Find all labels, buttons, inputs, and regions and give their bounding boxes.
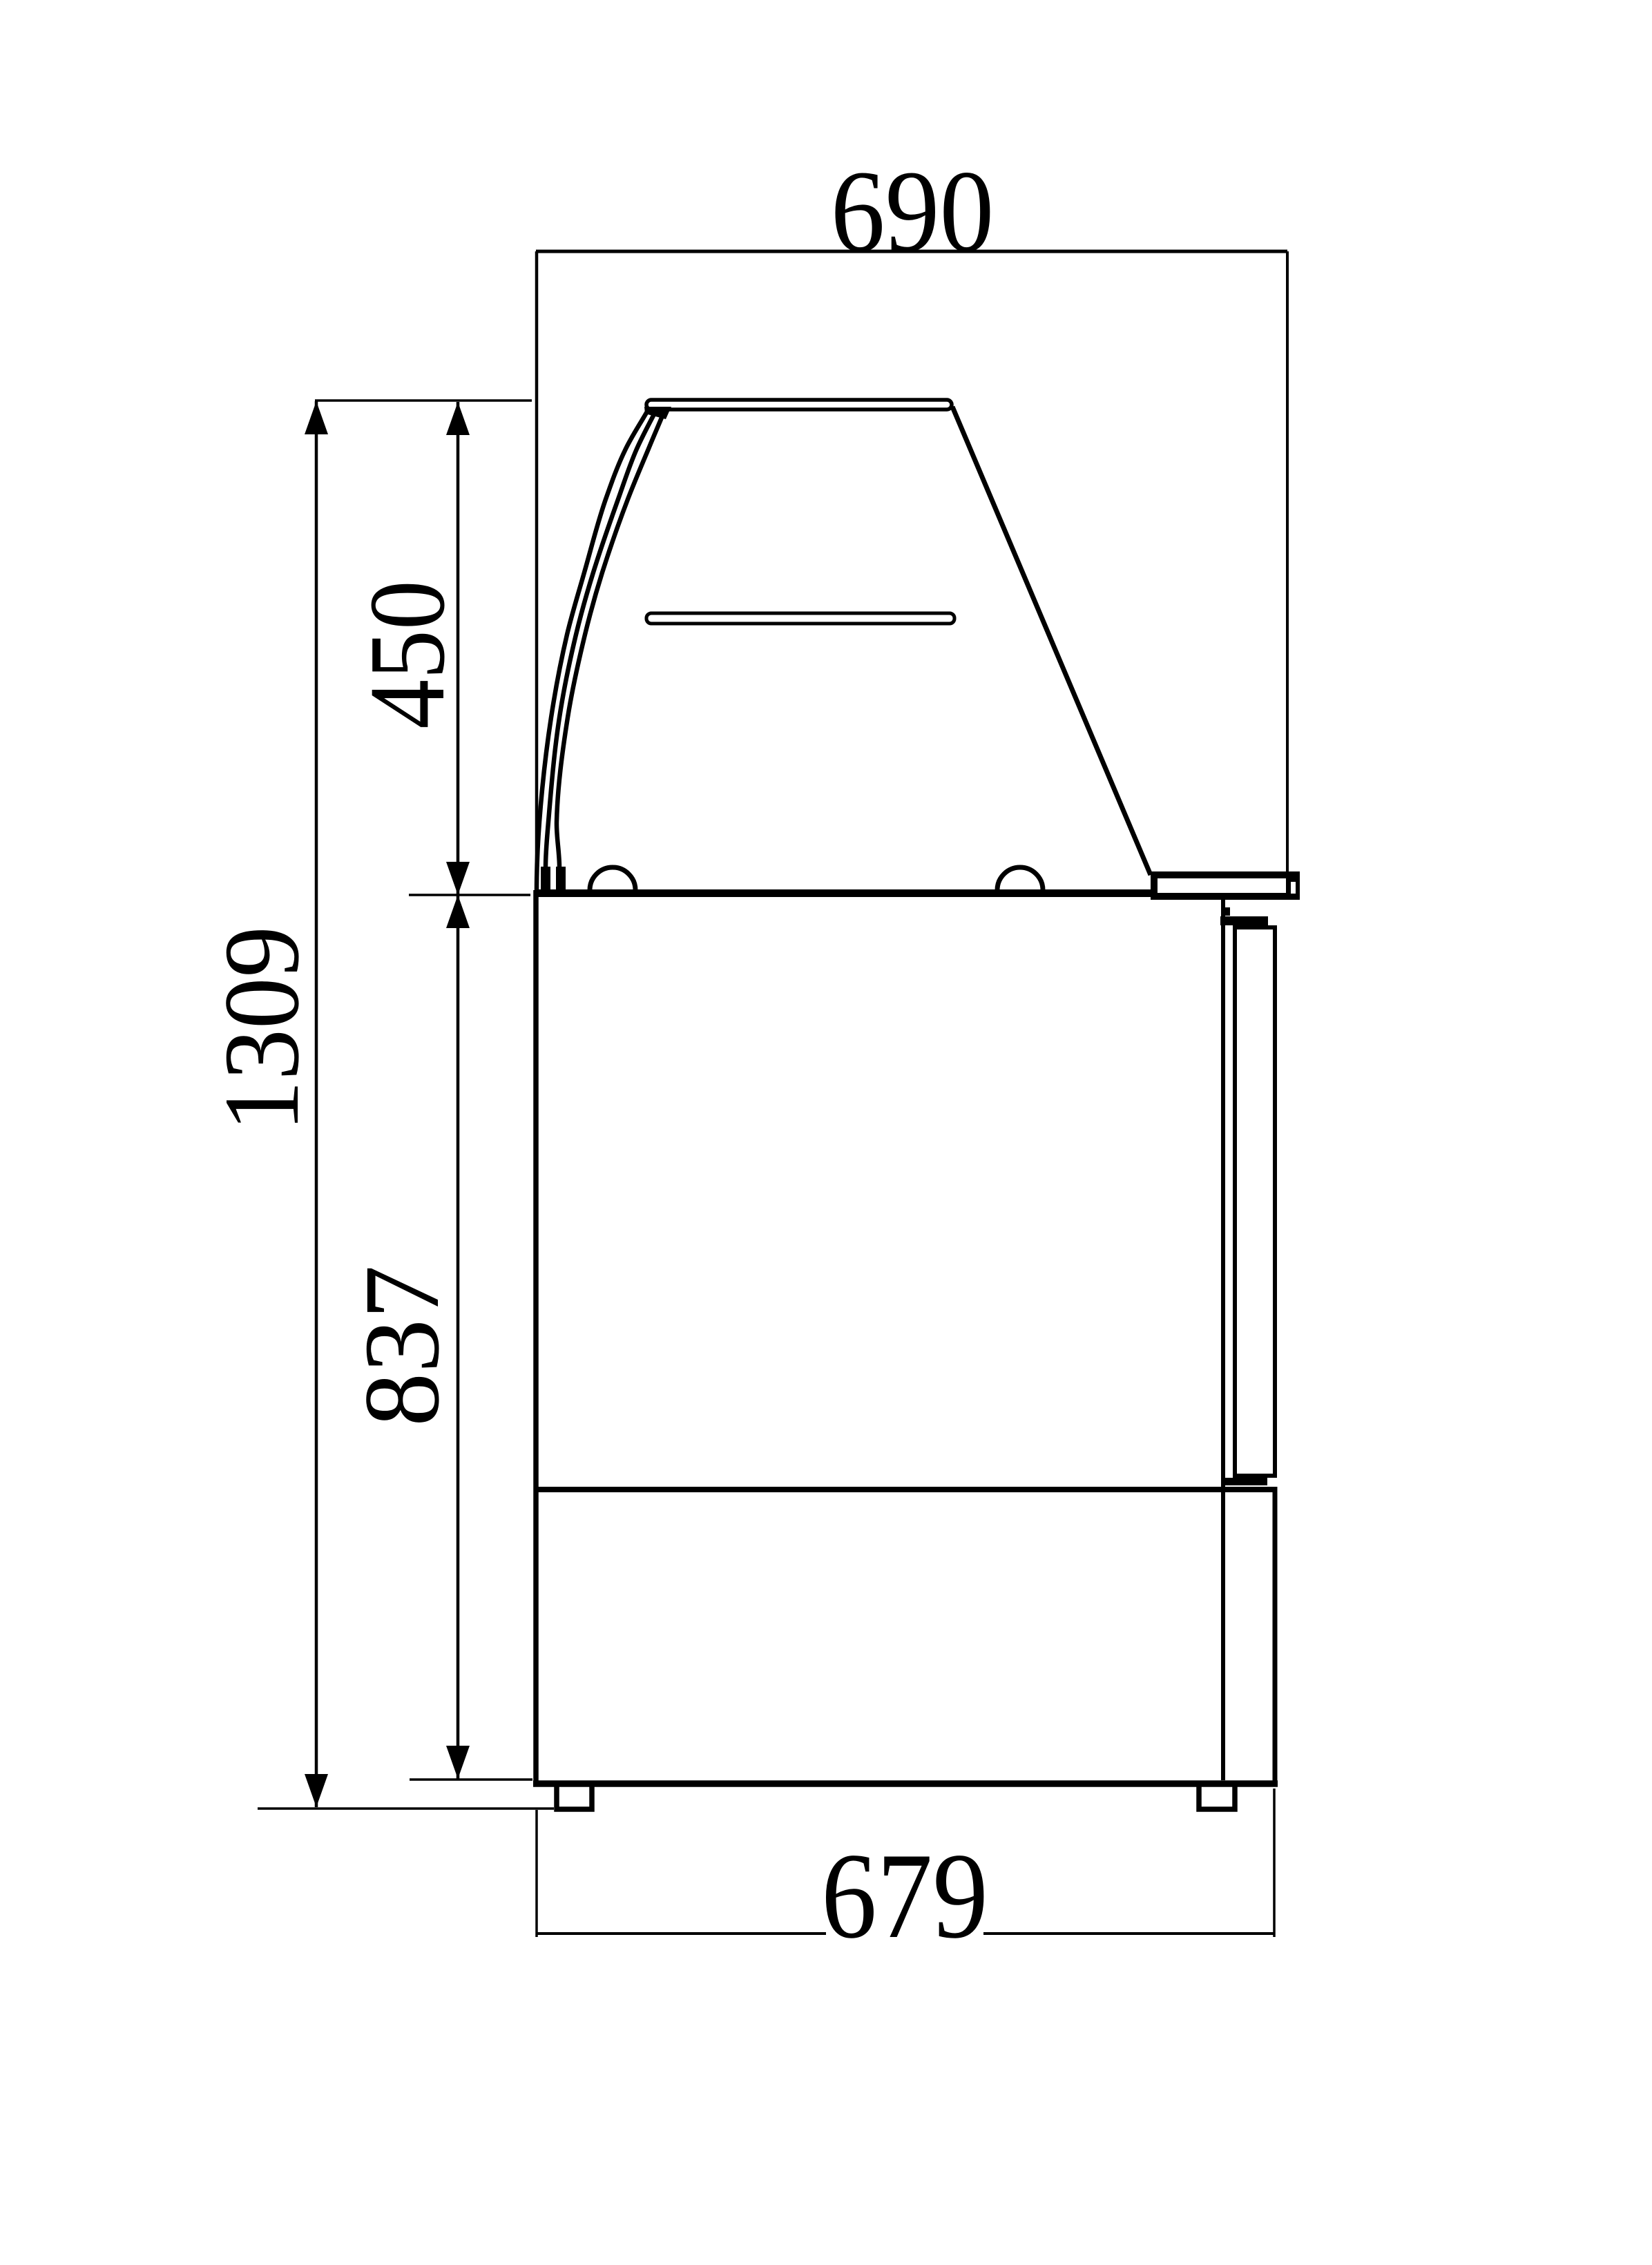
svg-text:837: 837 bbox=[342, 1265, 461, 1427]
svg-text:679: 679 bbox=[821, 1828, 988, 1964]
svg-text:1309: 1309 bbox=[202, 926, 321, 1132]
svg-text:450: 450 bbox=[347, 580, 467, 729]
svg-text:690: 690 bbox=[831, 147, 995, 277]
